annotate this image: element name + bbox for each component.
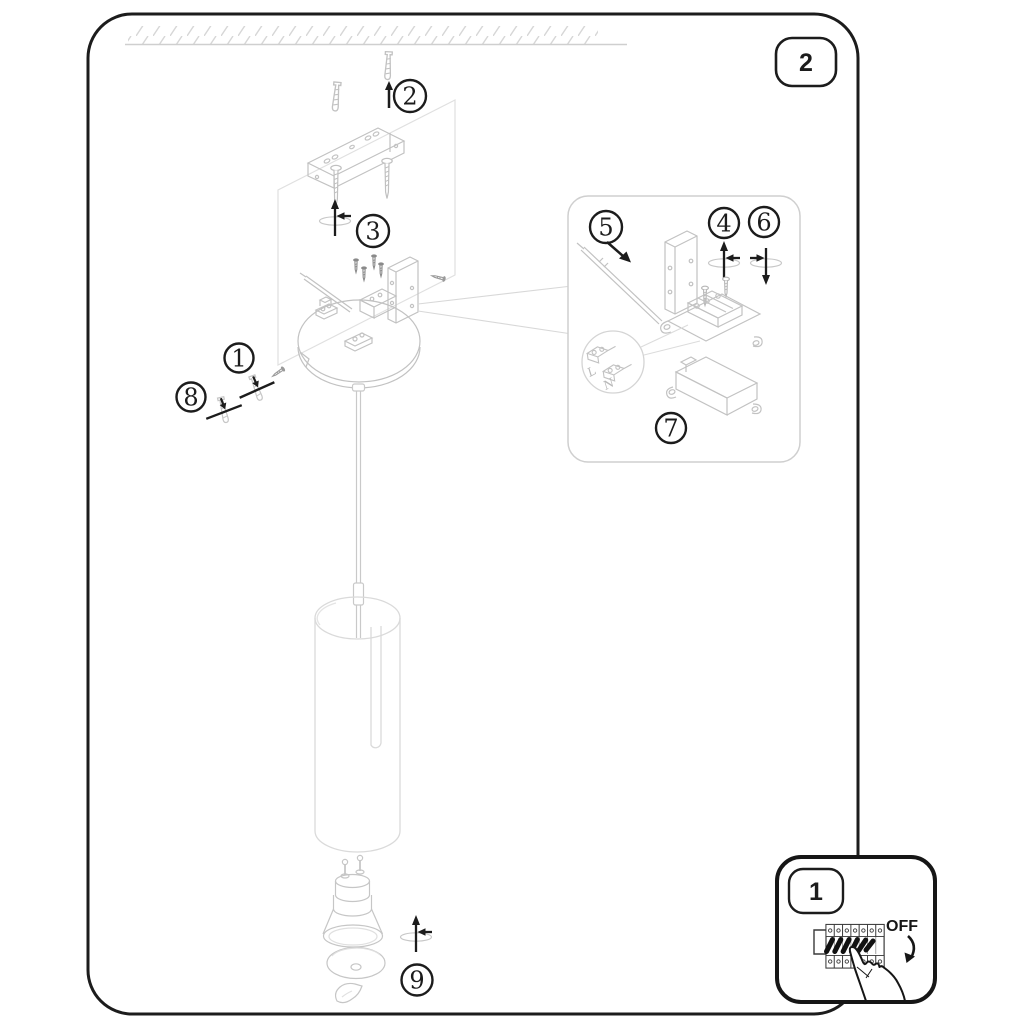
callout-9: 9: [402, 965, 433, 996]
instruction-page: 2 2 3: [0, 0, 1024, 1024]
callout-5: 5: [590, 211, 622, 243]
ceiling-hatch-lines: [128, 26, 598, 44]
step-badge-1-label: 1: [809, 878, 823, 906]
power-off-inset: 1: [777, 857, 935, 1002]
callout-4: 4: [709, 208, 739, 238]
callout-7: 7: [656, 413, 686, 443]
off-label: OFF: [886, 918, 918, 935]
callout-8: 8: [177, 383, 206, 412]
ceiling-hatch: [125, 26, 627, 45]
callout-4-label: 4: [716, 210, 731, 238]
callout-2-label: 2: [402, 83, 417, 111]
callout-1-label: 1: [231, 345, 246, 373]
callout-1: 1: [225, 344, 254, 373]
callout-5-label: 5: [598, 214, 613, 242]
callout-6-label: 6: [756, 209, 771, 237]
step-badge-2: 2: [776, 38, 836, 86]
step-badge-1: 1: [789, 869, 843, 913]
step-badge-2-label: 2: [799, 49, 813, 77]
callout-3: 3: [357, 215, 389, 247]
instruction-frame: [88, 14, 858, 1014]
callout-6: 6: [749, 207, 779, 237]
callout-9-label: 9: [409, 967, 424, 995]
detail-inset-panel: 5 4 6: [568, 196, 800, 462]
callout-3-label: 3: [365, 218, 380, 246]
callout-2: 2: [394, 80, 426, 112]
callout-7-label: 7: [663, 415, 678, 443]
callout-8-label: 8: [183, 384, 198, 412]
